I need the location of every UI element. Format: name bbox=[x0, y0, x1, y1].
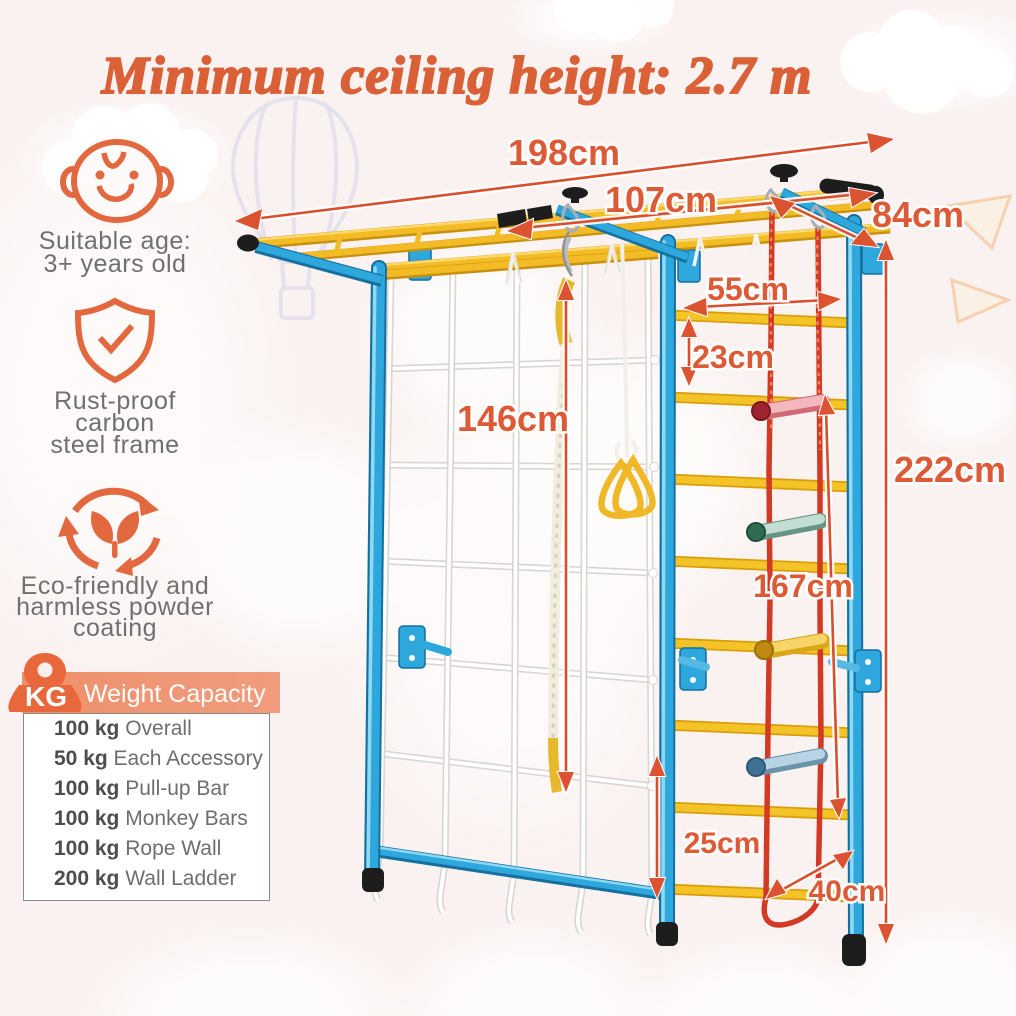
svg-text:167cm: 167cm bbox=[753, 568, 853, 604]
svg-text:55cm: 55cm bbox=[707, 271, 789, 307]
svg-text:222cm: 222cm bbox=[894, 449, 1006, 490]
svg-text:107cm: 107cm bbox=[605, 179, 717, 220]
svg-text:198cm: 198cm bbox=[508, 132, 620, 173]
svg-text:146cm: 146cm bbox=[457, 398, 569, 439]
svg-text:40cm: 40cm bbox=[809, 875, 886, 908]
svg-text:84cm: 84cm bbox=[872, 194, 964, 235]
svg-text:23cm: 23cm bbox=[692, 339, 774, 375]
svg-text:25cm: 25cm bbox=[684, 827, 761, 860]
